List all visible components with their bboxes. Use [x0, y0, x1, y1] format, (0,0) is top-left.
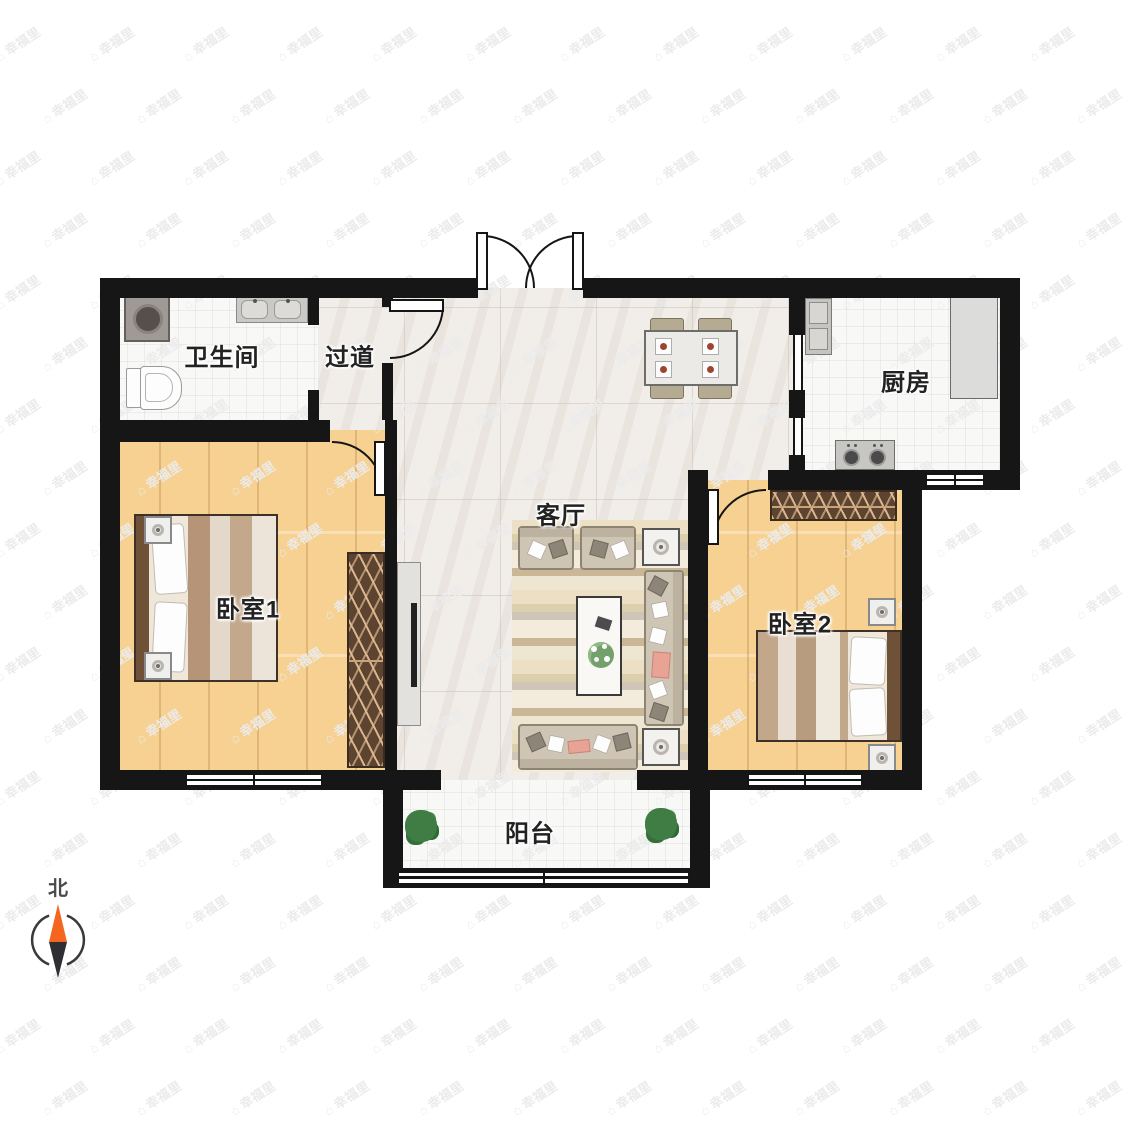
room-label-kitchen: 厨房: [881, 363, 931, 398]
watermark-text: ⌂ 幸福里: [978, 580, 1031, 623]
lamp-icon: [152, 524, 164, 536]
place-setting: [655, 338, 672, 355]
lamp-icon: [653, 539, 669, 555]
watermark-text: ⌂ 幸福里: [696, 0, 749, 3]
wardrobe-divider: [772, 506, 895, 508]
k-basin-bottom: [809, 328, 828, 350]
watermark-text: ⌂ 幸福里: [226, 84, 279, 127]
wall-bath-sep-bottom: [308, 390, 319, 420]
nightstand: [144, 652, 172, 680]
watermark-text: ⌂ 幸福里: [273, 22, 326, 65]
watermark-text: ⌂ 幸福里: [1119, 642, 1125, 685]
wall-bedroom2-right: [902, 470, 922, 790]
watermark-text: ⌂ 幸福里: [320, 828, 373, 871]
lamp-icon: [876, 752, 888, 764]
watermark-text: ⌂ 幸福里: [179, 146, 232, 189]
watermark-text: ⌂ 幸福里: [1119, 270, 1125, 313]
watermark-text: ⌂ 幸福里: [38, 208, 91, 251]
room-label-living: 客厅: [536, 496, 586, 531]
watermark-text: ⌂ 幸福里: [226, 1076, 279, 1119]
watermark-text: ⌂ 幸福里: [837, 146, 890, 189]
compass-icon: [12, 898, 104, 984]
pillow: [849, 687, 887, 737]
toilet: [126, 366, 184, 410]
watermark-text: ⌂ 幸福里: [1119, 394, 1125, 437]
watermark-text: ⌂ 幸福里: [978, 704, 1031, 747]
watermark-text: ⌂ 幸福里: [649, 1014, 702, 1057]
wall-hall-right-bottom: [382, 363, 393, 420]
entry-door-arc-right: [526, 236, 578, 288]
watermark-text: ⌂ 幸福里: [367, 890, 420, 933]
place-setting: [655, 361, 672, 378]
watermark-text: ⌂ 幸福里: [1119, 146, 1125, 189]
watermark-text: ⌂ 幸福里: [790, 208, 843, 251]
watermark-text: ⌂ 幸福里: [743, 890, 796, 933]
watermark-text: ⌂ 幸福里: [931, 890, 984, 933]
partition-post: [789, 390, 805, 418]
watermark-text: ⌂ 幸福里: [931, 518, 984, 561]
watermark-text: ⌂ 幸福里: [38, 1076, 91, 1119]
stove-knob: [873, 444, 876, 447]
watermark-text: ⌂ 幸福里: [414, 0, 467, 3]
watermark-text: ⌂ 幸福里: [649, 146, 702, 189]
watermark-text: ⌂ 幸福里: [414, 952, 467, 995]
window-kitchen: [925, 473, 985, 487]
bathroom-sink: [236, 296, 308, 323]
watermark-text: ⌂ 幸福里: [132, 828, 185, 871]
plant-icon: [588, 642, 614, 668]
plant-icon: [645, 808, 677, 840]
wall-right: [1000, 278, 1020, 490]
watermark-text: ⌂ 幸福里: [978, 952, 1031, 995]
watermark-text: ⌂ 幸福里: [1119, 518, 1125, 561]
lamp-icon: [653, 739, 669, 755]
stove-knob: [847, 444, 850, 447]
watermark-text: ⌂ 幸福里: [0, 642, 44, 685]
watermark-text: ⌂ 幸福里: [790, 828, 843, 871]
watermark-text: ⌂ 幸福里: [790, 0, 843, 3]
wall-bedroom1-right: [385, 420, 397, 770]
watermark-text: ⌂ 幸福里: [132, 208, 185, 251]
place-setting: [702, 361, 719, 378]
watermark-text: ⌂ 幸福里: [320, 0, 373, 3]
watermark-text: ⌂ 幸福里: [555, 22, 608, 65]
watermark-text: ⌂ 幸福里: [1072, 952, 1125, 995]
sofa-long: [644, 570, 684, 726]
watermark-text: ⌂ 幸福里: [226, 952, 279, 995]
watermark-text: ⌂ 幸福里: [38, 456, 91, 499]
watermark-text: ⌂ 幸福里: [1119, 766, 1125, 809]
watermark-text: ⌂ 幸福里: [696, 208, 749, 251]
wall-balcony-right: [690, 790, 710, 888]
washer-drum-icon: [133, 304, 163, 334]
watermark-text: ⌂ 幸福里: [320, 208, 373, 251]
watermark-text: ⌂ 幸福里: [1025, 394, 1078, 437]
stove-knob: [880, 444, 883, 447]
watermark-text: ⌂ 幸福里: [931, 22, 984, 65]
watermark-text: ⌂ 幸福里: [273, 890, 326, 933]
watermark-text: ⌂ 幸福里: [1025, 766, 1078, 809]
watermark-text: ⌂ 幸福里: [1119, 890, 1125, 933]
room-label-bedroom1: 卧室1: [216, 590, 280, 625]
window-balcony: [397, 871, 690, 885]
kitchen-counter: [950, 295, 998, 399]
watermark-text: ⌂ 幸福里: [38, 580, 91, 623]
k-basin-top: [809, 302, 828, 324]
watermark-text: ⌂ 幸福里: [461, 146, 514, 189]
bed2: [756, 630, 902, 742]
watermark-text: ⌂ 幸福里: [508, 952, 561, 995]
watermark-text: ⌂ 幸福里: [179, 22, 232, 65]
tv-icon: [411, 603, 417, 687]
watermark-text: ⌂ 幸福里: [367, 146, 420, 189]
watermark-text: ⌂ 幸福里: [0, 22, 44, 65]
watermark-text: ⌂ 幸福里: [461, 890, 514, 933]
watermark-text: ⌂ 幸福里: [1072, 84, 1125, 127]
watermark-text: ⌂ 幸福里: [978, 1076, 1031, 1119]
nightstand: [868, 744, 896, 772]
watermark-text: ⌂ 幸福里: [1119, 22, 1125, 65]
watermark-text: ⌂ 幸福里: [931, 766, 984, 809]
watermark-text: ⌂ 幸福里: [226, 0, 279, 3]
watermark-text: ⌂ 幸福里: [837, 890, 890, 933]
watermark-text: ⌂ 幸福里: [38, 0, 91, 3]
watermark-text: ⌂ 幸福里: [85, 1014, 138, 1057]
watermark-text: ⌂ 幸福里: [1072, 332, 1125, 375]
watermark-text: ⌂ 幸福里: [508, 208, 561, 251]
watermark-text: ⌂ 幸福里: [790, 1076, 843, 1119]
watermark-text: ⌂ 幸福里: [602, 1076, 655, 1119]
watermark-text: ⌂ 幸福里: [1025, 518, 1078, 561]
watermark-text: ⌂ 幸福里: [1072, 1076, 1125, 1119]
watermark-text: ⌂ 幸福里: [1025, 642, 1078, 685]
book-icon: [595, 616, 613, 631]
wardrobe2: [770, 490, 897, 521]
watermark-text: ⌂ 幸福里: [132, 84, 185, 127]
partition-post: [789, 298, 805, 335]
watermark-text: ⌂ 幸福里: [696, 1076, 749, 1119]
room-label-bathroom: 卫生间: [185, 338, 260, 373]
watermark-text: ⌂ 幸福里: [884, 1076, 937, 1119]
watermark-text: ⌂ 幸福里: [0, 766, 44, 809]
watermark-text: ⌂ 幸福里: [1072, 208, 1125, 251]
watermark-text: ⌂ 幸福里: [367, 1014, 420, 1057]
watermark-text: ⌂ 幸福里: [273, 146, 326, 189]
watermark-text: ⌂ 幸福里: [414, 208, 467, 251]
armchair: [580, 526, 636, 570]
watermark-text: ⌂ 幸福里: [931, 1014, 984, 1057]
watermark-text: ⌂ 幸福里: [179, 890, 232, 933]
watermark-text: ⌂ 幸福里: [0, 518, 44, 561]
watermark-text: ⌂ 幸福里: [414, 1076, 467, 1119]
watermark-text: ⌂ 幸福里: [38, 332, 91, 375]
watermark-text: ⌂ 幸福里: [1025, 890, 1078, 933]
watermark-text: ⌂ 幸福里: [0, 394, 44, 437]
watermark-text: ⌂ 幸福里: [1119, 1014, 1125, 1057]
watermark-text: ⌂ 幸福里: [508, 84, 561, 127]
watermark-text: ⌂ 幸福里: [931, 642, 984, 685]
wardrobe-divider: [349, 660, 383, 662]
watermark-text: ⌂ 幸福里: [508, 0, 561, 3]
watermark-text: ⌂ 幸福里: [320, 952, 373, 995]
lamp-icon: [152, 660, 164, 672]
watermark-text: ⌂ 幸福里: [367, 22, 420, 65]
watermark-text: ⌂ 幸福里: [1025, 1014, 1078, 1057]
watermark-text: ⌂ 幸福里: [884, 0, 937, 3]
headboard: [887, 632, 900, 740]
blanket: [758, 632, 848, 740]
toilet-bowl: [140, 366, 182, 410]
watermark-text: ⌂ 幸福里: [320, 84, 373, 127]
watermark-text: ⌂ 幸福里: [38, 84, 91, 127]
wall-bedroom2-left: [688, 470, 708, 790]
watermark-text: ⌂ 幸福里: [743, 146, 796, 189]
watermark-text: ⌂ 幸福里: [931, 146, 984, 189]
watermark-text: ⌂ 幸福里: [649, 22, 702, 65]
wall-top-right: [583, 278, 1020, 298]
armchair: [518, 526, 574, 570]
watermark-text: ⌂ 幸福里: [320, 1076, 373, 1119]
watermark-text: ⌂ 幸福里: [132, 952, 185, 995]
watermark-text: ⌂ 幸福里: [884, 84, 937, 127]
watermark-text: ⌂ 幸福里: [0, 146, 44, 189]
stove: [835, 440, 895, 470]
coffee-table: [576, 596, 622, 696]
watermark-text: ⌂ 幸福里: [743, 1014, 796, 1057]
kitchen-sink: [805, 298, 832, 355]
watermark-text: ⌂ 幸福里: [85, 22, 138, 65]
floorplan-canvas: ⌂ 幸福里⌂ 幸福里⌂ 幸福里⌂ 幸福里⌂ 幸福里⌂ 幸福里⌂ 幸福里⌂ 幸福里…: [0, 0, 1125, 1125]
side-table: [642, 528, 680, 566]
watermark-text: ⌂ 幸福里: [414, 84, 467, 127]
watermark-text: ⌂ 幸福里: [837, 22, 890, 65]
watermark-text: ⌂ 幸福里: [602, 952, 655, 995]
lamp-icon: [876, 606, 888, 618]
dining-table: [644, 330, 738, 386]
watermark-text: ⌂ 幸福里: [884, 828, 937, 871]
plant-icon: [405, 810, 437, 842]
watermark-text: ⌂ 幸福里: [602, 208, 655, 251]
watermark-text: ⌂ 幸福里: [884, 208, 937, 251]
place-setting: [702, 338, 719, 355]
watermark-text: ⌂ 幸福里: [649, 890, 702, 933]
watermark-text: ⌂ 幸福里: [1072, 456, 1125, 499]
watermark-text: ⌂ 幸福里: [132, 0, 185, 3]
watermark-text: ⌂ 幸福里: [602, 84, 655, 127]
wall-bath-bottom: [100, 420, 330, 442]
watermark-text: ⌂ 幸福里: [179, 1014, 232, 1057]
watermark-text: ⌂ 幸福里: [85, 146, 138, 189]
washing-machine: [124, 296, 170, 342]
watermark-text: ⌂ 幸福里: [0, 270, 44, 313]
tv-cabinet: [397, 562, 421, 726]
watermark-text: ⌂ 幸福里: [978, 828, 1031, 871]
room-label-bedroom2: 卧室2: [768, 605, 832, 640]
watermark-text: ⌂ 幸福里: [508, 1076, 561, 1119]
watermark-text: ⌂ 幸福里: [0, 1014, 44, 1057]
wall-hall-right-top: [382, 298, 393, 307]
watermark-text: ⌂ 幸福里: [461, 1014, 514, 1057]
stove-knob: [854, 444, 857, 447]
watermark-text: ⌂ 幸福里: [1072, 0, 1125, 3]
wardrobe1: [347, 552, 385, 768]
watermark-text: ⌂ 幸福里: [837, 1014, 890, 1057]
wall-top-left: [100, 278, 478, 298]
watermark-text: ⌂ 幸福里: [555, 146, 608, 189]
watermark-text: ⌂ 幸福里: [555, 1014, 608, 1057]
watermark-text: ⌂ 幸福里: [743, 22, 796, 65]
burner-icon: [869, 449, 886, 466]
watermark-text: ⌂ 幸福里: [226, 208, 279, 251]
watermark-text: ⌂ 幸福里: [884, 952, 937, 995]
watermark-text: ⌂ 幸福里: [1025, 22, 1078, 65]
wall-left: [100, 278, 120, 790]
watermark-text: ⌂ 幸福里: [461, 22, 514, 65]
watermark-text: ⌂ 幸福里: [226, 828, 279, 871]
wall-bedroom2-top-b: [768, 470, 795, 490]
watermark-text: ⌂ 幸福里: [1072, 704, 1125, 747]
watermark-text: ⌂ 幸福里: [1025, 146, 1078, 189]
watermark-text: ⌂ 幸福里: [555, 890, 608, 933]
watermark-text: ⌂ 幸福里: [978, 84, 1031, 127]
window-bedroom2: [747, 773, 863, 787]
burner-icon: [843, 449, 860, 466]
wall-bedroom2-top-a: [688, 470, 707, 490]
faucet-dot: [253, 299, 257, 303]
watermark-text: ⌂ 幸福里: [132, 1076, 185, 1119]
watermark-text: ⌂ 幸福里: [38, 704, 91, 747]
wall-bath-sep-top: [308, 298, 319, 325]
watermark-text: ⌂ 幸福里: [1025, 270, 1078, 313]
partition-post: [789, 455, 805, 472]
sofa: [518, 724, 638, 770]
watermark-text: ⌂ 幸福里: [978, 0, 1031, 3]
room-label-hallway: 过道: [325, 338, 375, 373]
watermark-text: ⌂ 幸福里: [696, 952, 749, 995]
room-label-balcony: 阳台: [505, 814, 555, 849]
side-table: [642, 728, 680, 766]
watermark-text: ⌂ 幸福里: [1072, 828, 1125, 871]
nightstand: [144, 516, 172, 544]
watermark-text: ⌂ 幸福里: [790, 952, 843, 995]
compass: 北: [12, 872, 104, 984]
window-bedroom1: [185, 773, 323, 787]
toilet-seat: [145, 373, 173, 402]
watermark-text: ⌂ 幸福里: [790, 84, 843, 127]
watermark-text: ⌂ 幸福里: [1072, 580, 1125, 623]
watermark-text: ⌂ 幸福里: [273, 1014, 326, 1057]
faucet-dot: [286, 299, 290, 303]
watermark-text: ⌂ 幸福里: [38, 828, 91, 871]
compass-north-label: 北: [12, 872, 104, 901]
pillow: [849, 636, 887, 686]
watermark-text: ⌂ 幸福里: [602, 0, 655, 3]
watermark-text: ⌂ 幸福里: [696, 84, 749, 127]
nightstand: [868, 598, 896, 626]
watermark-text: ⌂ 幸福里: [978, 208, 1031, 251]
